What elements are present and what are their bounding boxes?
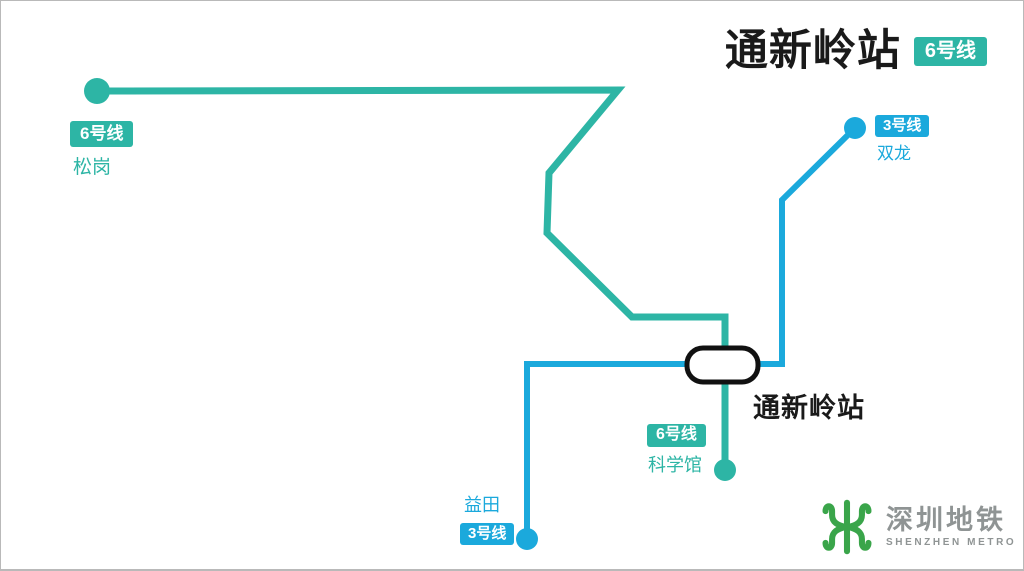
terminus-dot-yitian (516, 528, 538, 550)
interchange-station-marker (687, 348, 758, 382)
metro-map-svg (1, 1, 1024, 571)
station-name-yitian: 益田 (464, 496, 514, 514)
line3-badge: 3号线 (460, 523, 514, 545)
line6-route-path (97, 90, 725, 470)
station-name-kexueguan: 科学馆 (648, 456, 706, 474)
logo-name-en: SHENZHEN METRO (886, 538, 1016, 548)
terminus-dot-kexueguan (714, 459, 736, 481)
shenzhen-metro-logo-icon (817, 499, 877, 555)
metro-line-diagram: 通新岭站 6号线 6号线 松岗 3号线 双龙 6号线 科学馆 益田 3号线 通新… (0, 0, 1024, 571)
line3-route-path (527, 128, 855, 539)
logo-text: 深圳地铁 SHENZHEN METRO (886, 506, 1016, 549)
interchange-station-label: 通新岭站 (753, 395, 865, 422)
line6-badge: 6号线 (70, 121, 133, 147)
terminus-dot-songgang (84, 78, 110, 104)
logo-name-cn: 深圳地铁 (886, 506, 1016, 536)
page-header: 通新岭站 6号线 (725, 30, 987, 73)
station-name-songgang: 松岗 (73, 158, 133, 177)
line6-badge: 6号线 (914, 37, 987, 66)
terminus-label-yitian: 益田 3号线 (460, 496, 514, 545)
line3-badge: 3号线 (875, 115, 929, 137)
terminus-label-songgang: 6号线 松岗 (70, 121, 133, 177)
terminus-dot-shuanglong (844, 117, 866, 139)
terminus-label-kexueguan: 6号线 科学馆 (647, 424, 706, 474)
station-name-shuanglong: 双龙 (877, 145, 929, 162)
line6-badge: 6号线 (647, 424, 706, 447)
page-title: 通新岭站 (725, 30, 901, 73)
shenzhen-metro-logo: 深圳地铁 SHENZHEN METRO (817, 499, 1016, 555)
terminus-label-shuanglong: 3号线 双龙 (875, 115, 929, 162)
